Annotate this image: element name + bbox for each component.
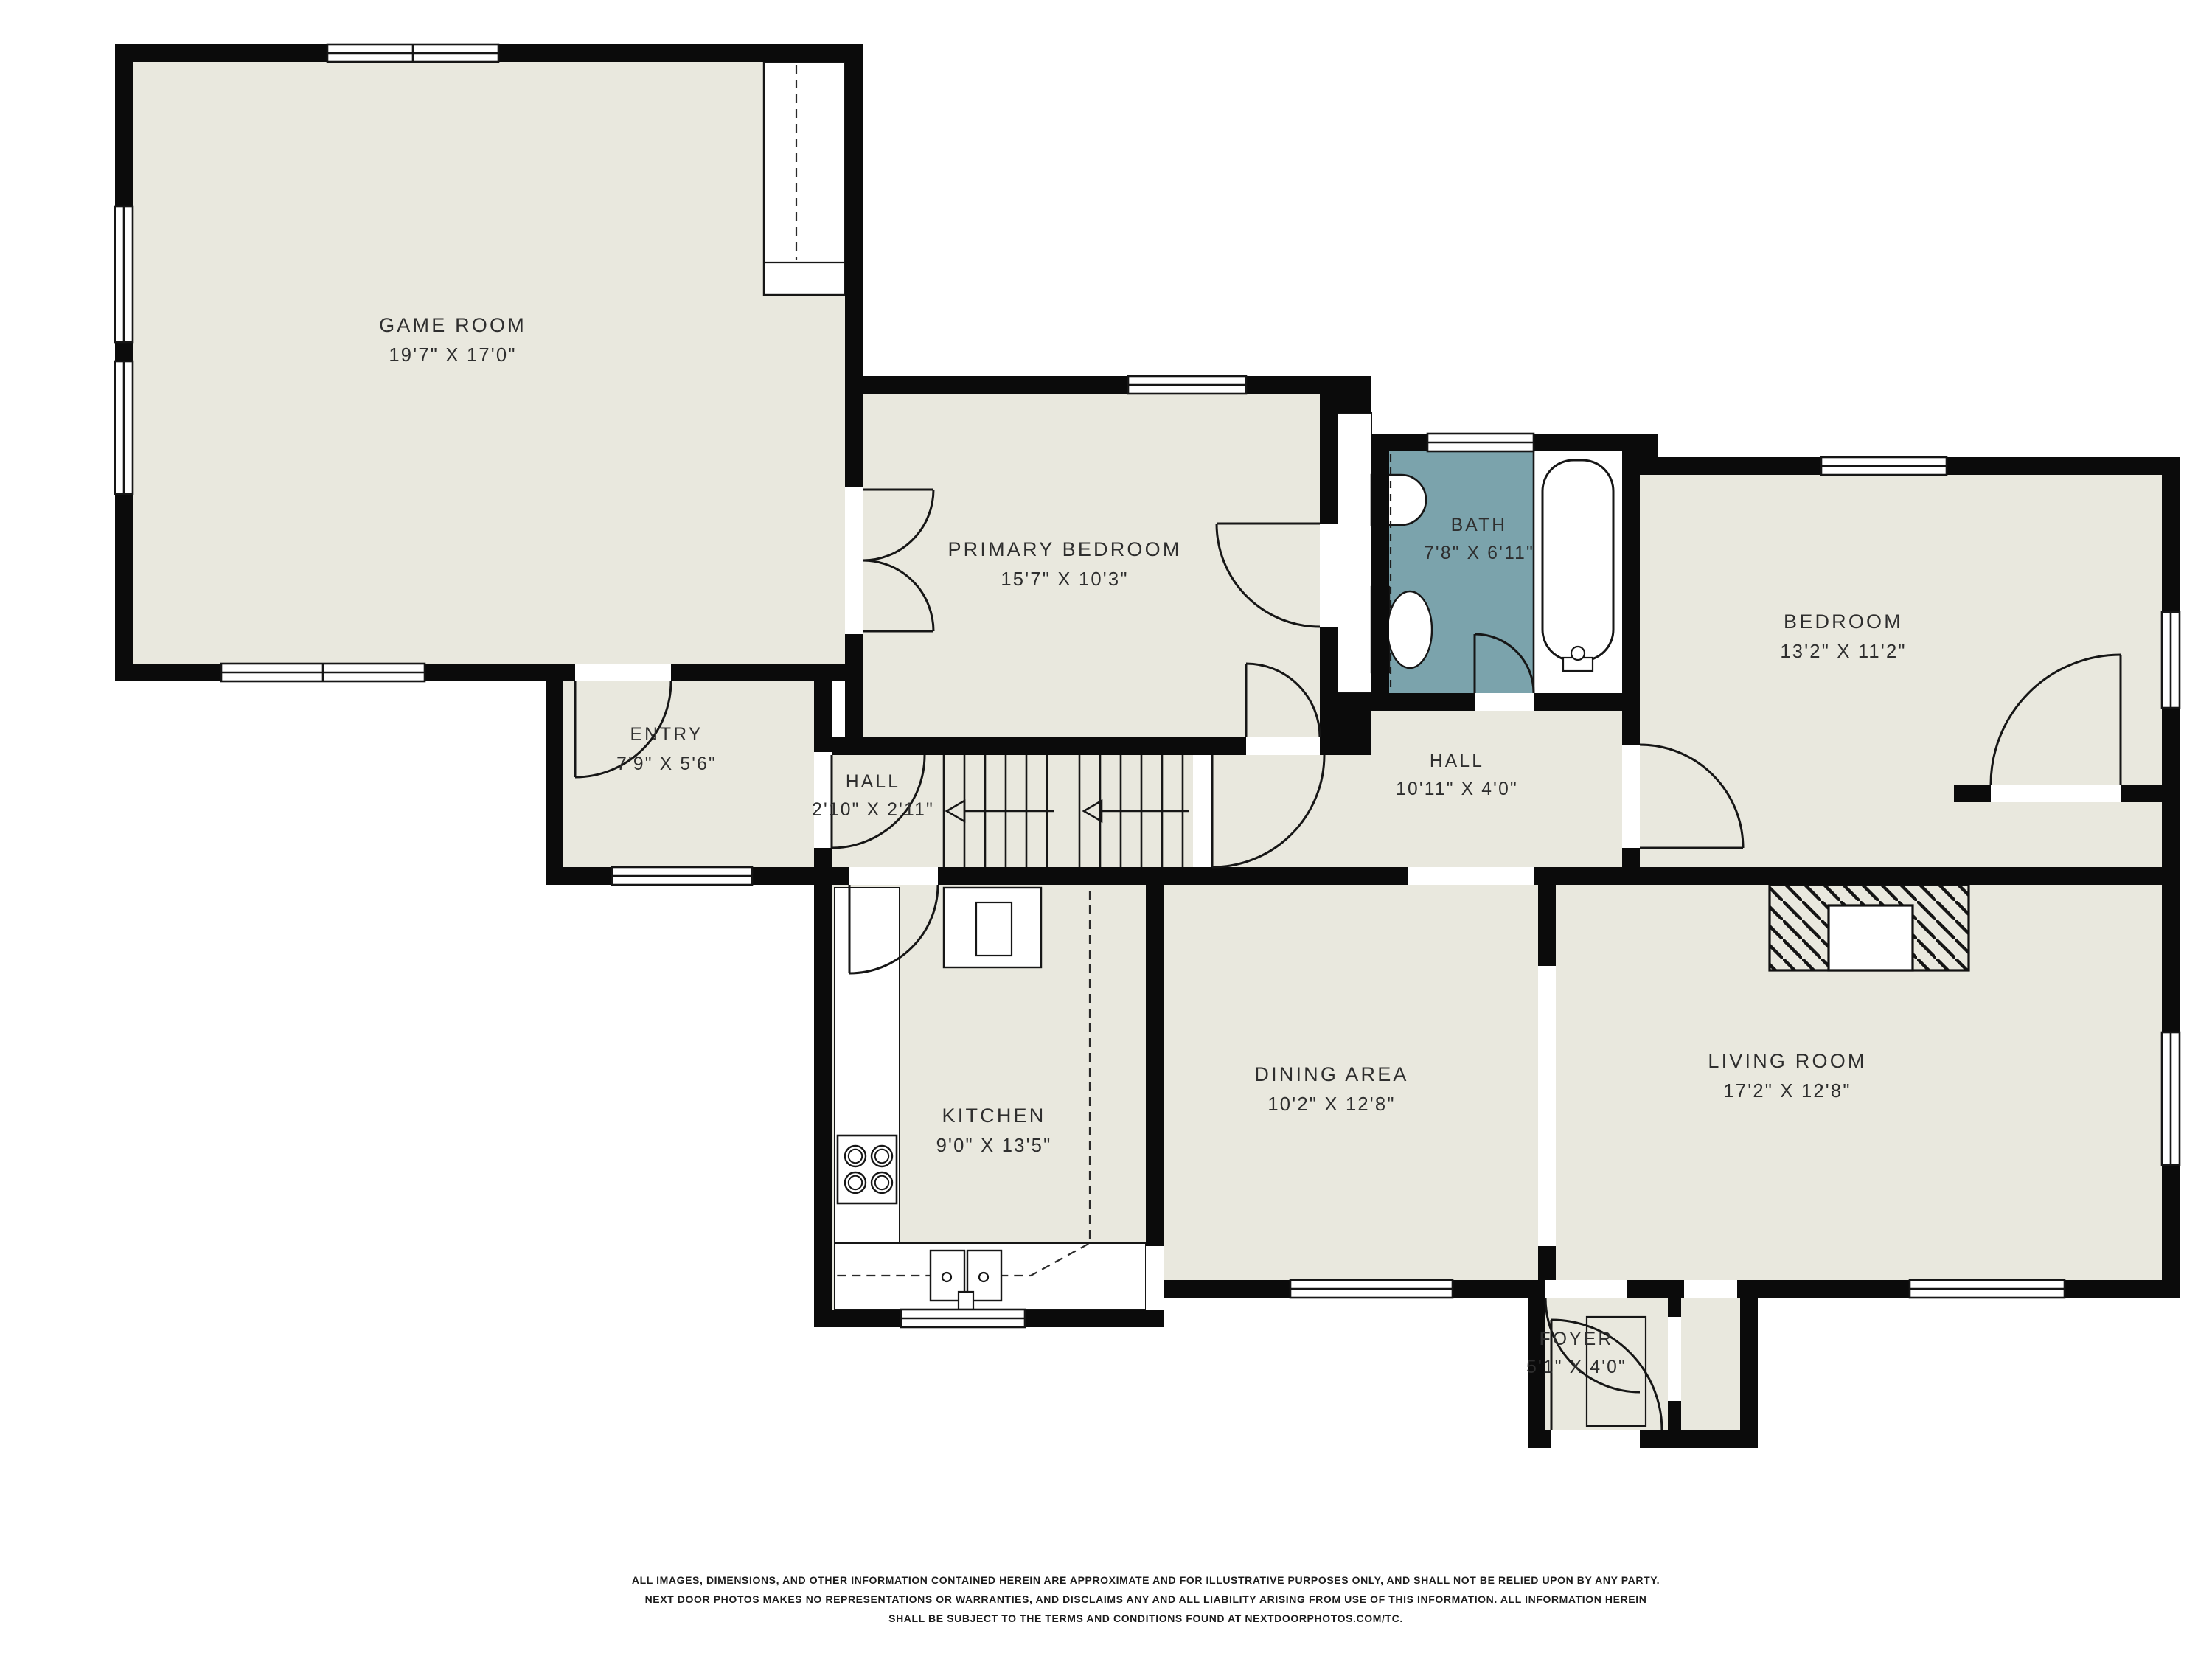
stove xyxy=(838,1135,897,1203)
window xyxy=(2162,1032,2180,1165)
primary-bedroom-label: PRIMARY BEDROOM xyxy=(947,538,1181,560)
floor-plan-page: GAME ROOM 19'7" X 17'0" PRIMARY BEDROOM … xyxy=(0,0,2212,1659)
dining-area-label: DINING AREA xyxy=(1254,1063,1408,1085)
entry-label: ENTRY xyxy=(630,725,703,745)
fireplace xyxy=(1770,885,1969,970)
living-room-label: LIVING ROOM xyxy=(1708,1050,1866,1072)
game-room-label: GAME ROOM xyxy=(379,314,526,336)
floor-plan-drawing: GAME ROOM 19'7" X 17'0" PRIMARY BEDROOM … xyxy=(0,0,2212,1659)
kitchen-label: KITCHEN xyxy=(942,1105,1046,1127)
bath-label: BATH xyxy=(1451,515,1508,535)
living-room-dims: 17'2" X 12'8" xyxy=(1723,1081,1851,1102)
window xyxy=(327,44,498,62)
foyer-label: FOYER xyxy=(1540,1329,1614,1349)
room-floor-primary-bedroom xyxy=(863,394,1320,737)
bedroom-label: BEDROOM xyxy=(1784,611,1903,633)
window xyxy=(1128,376,1246,394)
primary-bedroom-dims: 15'7" X 10'3" xyxy=(1001,569,1128,590)
disclaimer-line-3: SHALL BE SUBJECT TO THE TERMS AND CONDIT… xyxy=(888,1613,1403,1624)
window xyxy=(2162,612,2180,708)
window xyxy=(115,361,133,494)
dining-area-dims: 10'2" X 12'8" xyxy=(1267,1094,1395,1115)
room-floor-foyer-closet xyxy=(1681,1298,1740,1430)
room-floor-bedroom xyxy=(1640,475,2162,867)
game-room-dims: 19'7" X 17'0" xyxy=(389,345,516,366)
hall-label: HALL xyxy=(1430,751,1484,771)
window xyxy=(1910,1280,2065,1298)
bath-dims: 7'8" X 6'11" xyxy=(1424,543,1534,563)
chase-closet xyxy=(1338,413,1371,693)
window xyxy=(1427,434,1534,451)
disclaimer-line-2: NEXT DOOR PHOTOS MAKES NO REPRESENTATION… xyxy=(645,1593,1647,1605)
kitchen-dims: 9'0" X 13'5" xyxy=(936,1135,1052,1156)
bathtub xyxy=(1543,460,1613,671)
window xyxy=(115,206,133,342)
window xyxy=(221,664,425,681)
entry-dims: 7'9" X 5'6" xyxy=(616,754,717,774)
hall-dims: 10'11" X 4'0" xyxy=(1396,779,1518,799)
hall-small-dims: 2'10" X 2'11" xyxy=(812,800,934,820)
window xyxy=(901,1310,1025,1327)
disclaimer: ALL IMAGES, DIMENSIONS, AND OTHER INFORM… xyxy=(632,1574,1660,1624)
window xyxy=(1821,457,1947,475)
window xyxy=(612,867,752,885)
disclaimer-line-1: ALL IMAGES, DIMENSIONS, AND OTHER INFORM… xyxy=(632,1574,1660,1586)
refrigerator xyxy=(944,888,1041,967)
bedroom-dims: 13'2" X 11'2" xyxy=(1780,641,1906,662)
game-room-counter xyxy=(764,62,845,295)
hall-small-label: HALL xyxy=(846,772,900,792)
foyer-dims: 5'1" X 4'0" xyxy=(1526,1357,1627,1377)
window xyxy=(1290,1280,1453,1298)
